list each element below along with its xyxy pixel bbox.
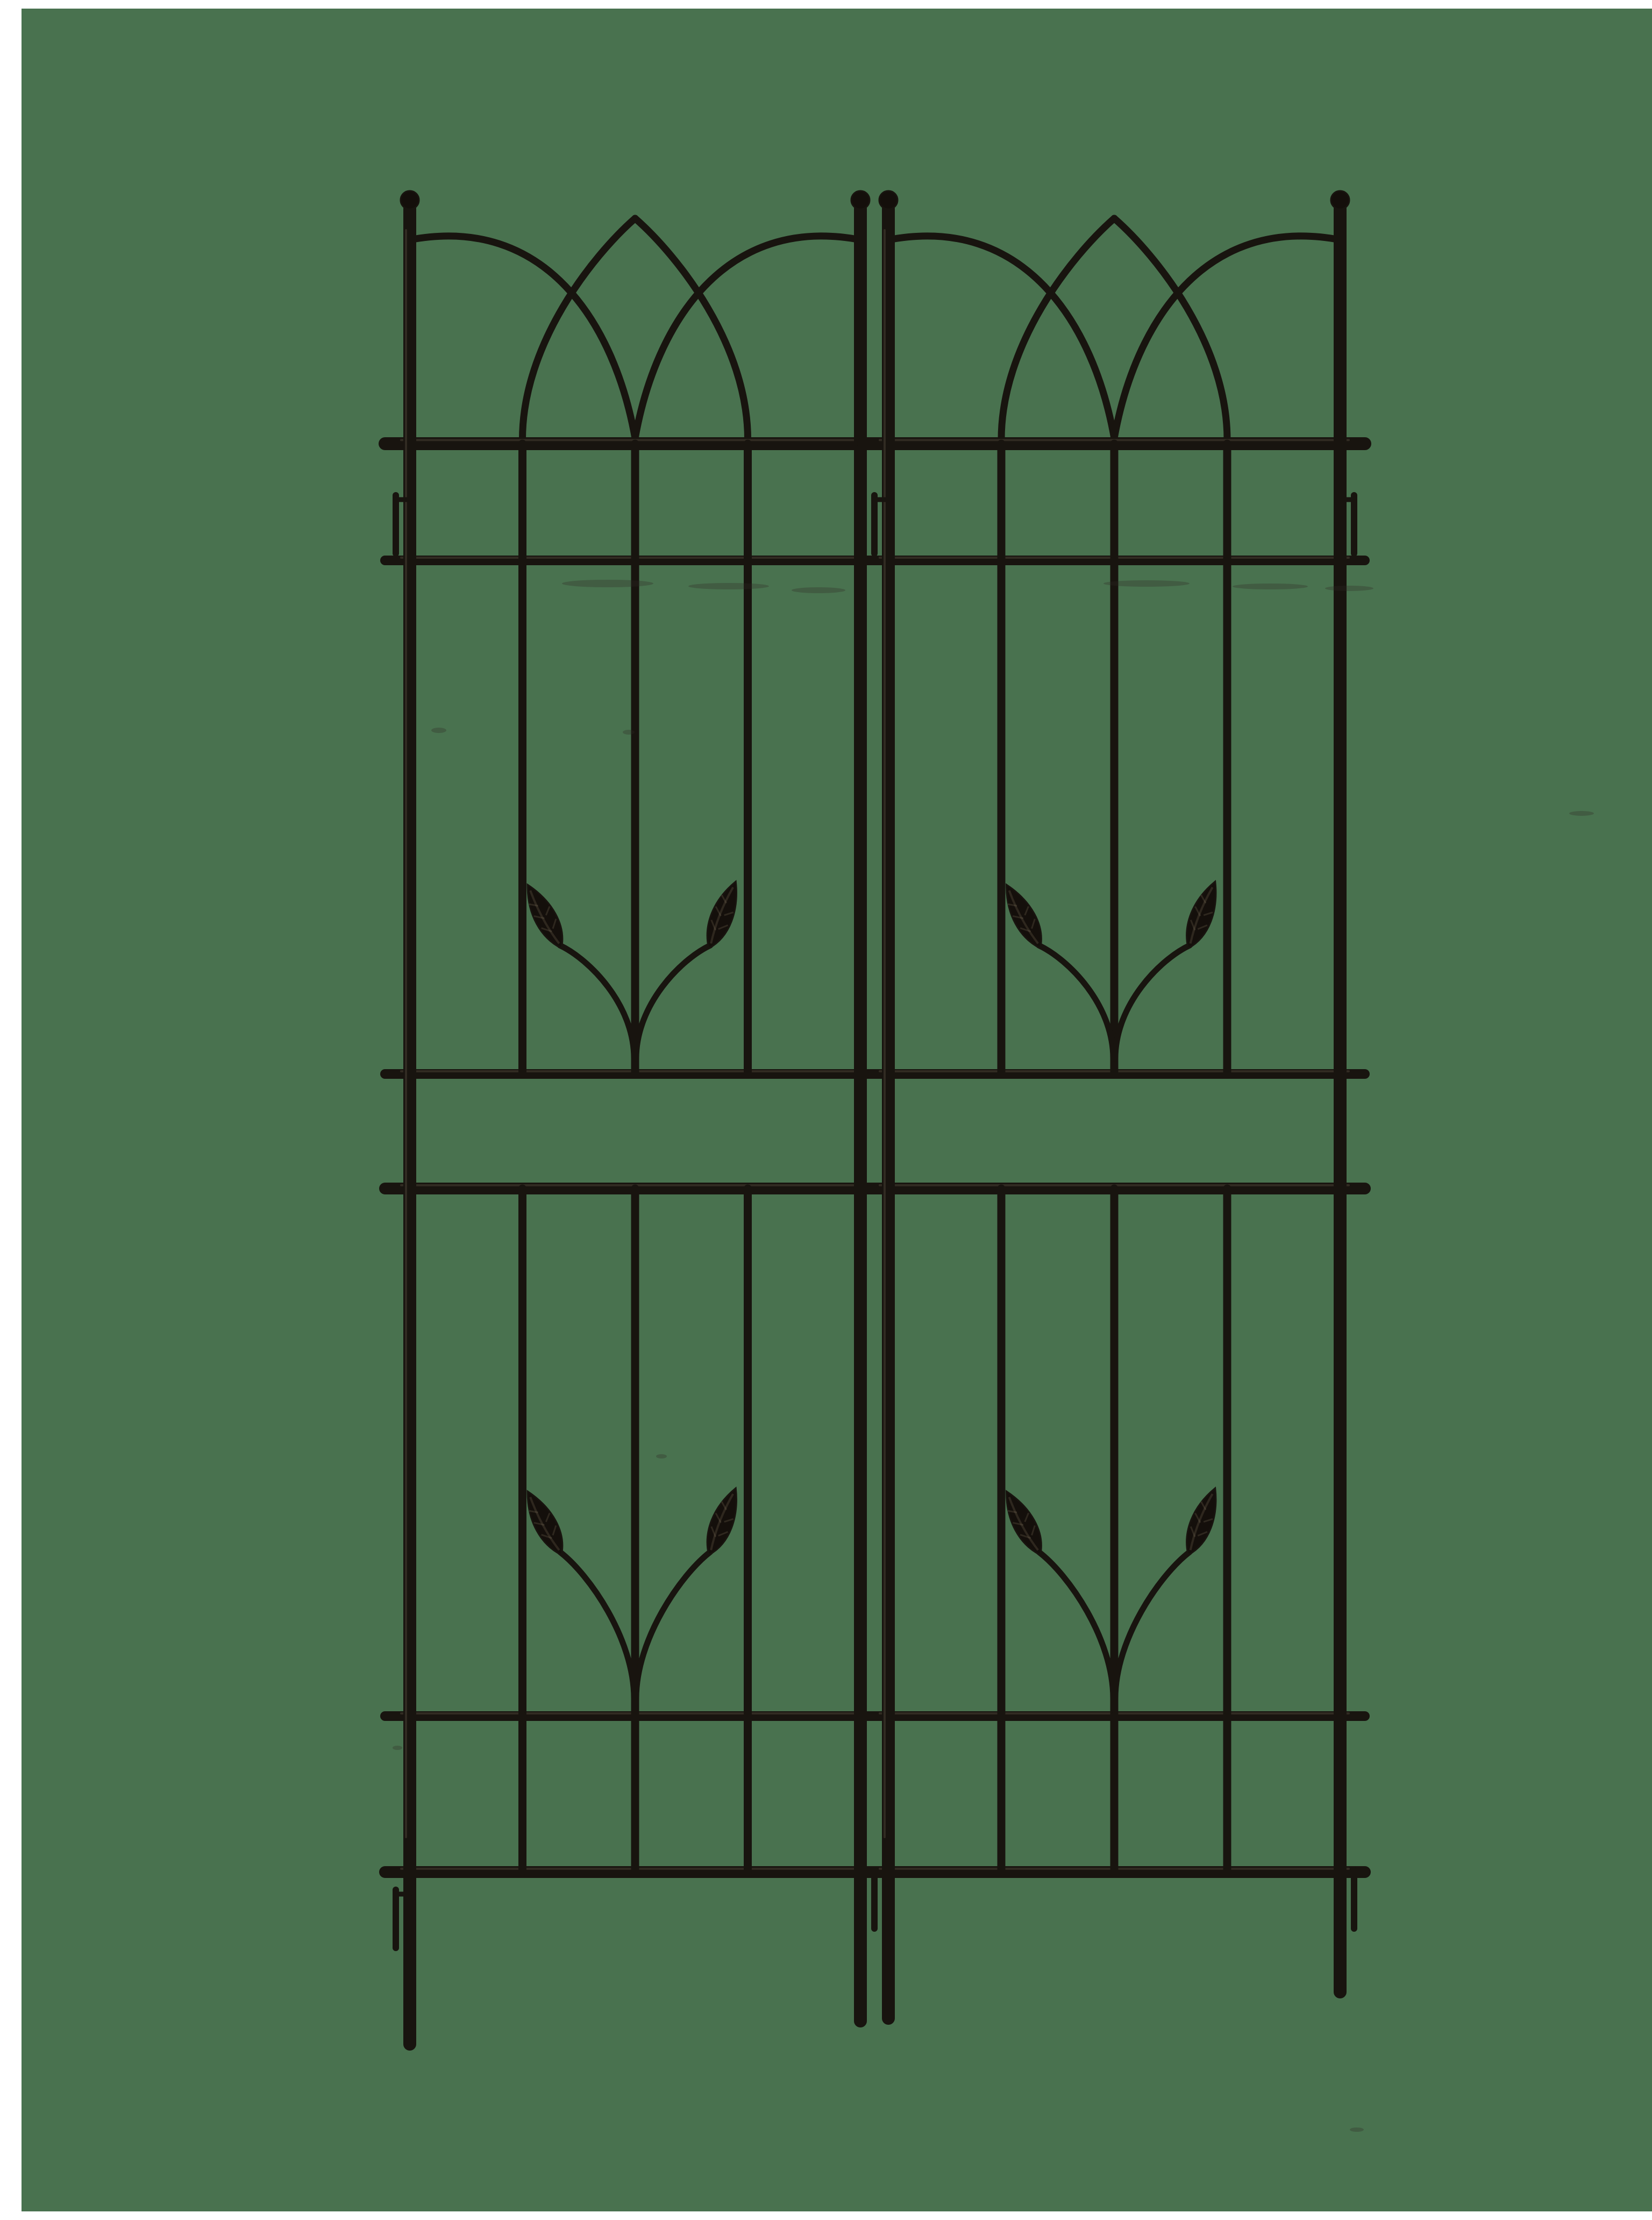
backdrop-smudge: [1103, 580, 1190, 587]
stem-lower-right: [636, 1552, 710, 1698]
arch-leg-left: [523, 218, 636, 439]
stem-upper-left: [560, 945, 635, 1058]
arch-leg-left: [1001, 218, 1114, 439]
leaf-ornament-icon: [999, 1486, 1049, 1560]
leaf-ornament-icon: [697, 1484, 747, 1559]
leaf-blade: [520, 879, 570, 954]
backdrop-smudge: [792, 587, 845, 593]
garden-trellis-product-photo: Two black metal garden trellis panels wi…: [22, 9, 1652, 2211]
stem-lower-right: [1115, 1552, 1190, 1698]
right-trellis-panel: [864, 191, 1365, 2018]
leaf-blade: [999, 1486, 1049, 1560]
backdrop-smudge: [1350, 2127, 1364, 2132]
arch-leg-right: [1114, 218, 1227, 439]
leaf-blade: [999, 879, 1049, 954]
trellis-illustration: [22, 9, 1652, 2211]
backdrop-smudge: [562, 580, 653, 587]
backdrop-smudge: [688, 583, 769, 589]
leaf-blade: [697, 1484, 747, 1559]
finial-ball: [1331, 191, 1349, 209]
backdrop-smudge: [623, 730, 635, 735]
backdrop-smudge: [393, 1746, 402, 1750]
leaf-blade: [697, 878, 747, 952]
left-trellis-panel: [385, 191, 885, 2044]
finial-ball: [851, 191, 870, 209]
leaf-ornament-icon: [520, 1486, 570, 1560]
finial-ball: [879, 191, 898, 209]
stem-upper-right: [1115, 945, 1190, 1058]
backdrop-smudge: [1233, 584, 1308, 589]
leaf-ornament-icon: [520, 879, 570, 954]
stem-upper-left: [1039, 945, 1113, 1058]
stem-lower-left: [1039, 1552, 1113, 1698]
stem-upper-right: [636, 945, 710, 1058]
leaf-blade: [1177, 1484, 1227, 1559]
vertical-bar-group: [1001, 444, 1227, 1872]
leaf-ornament-icon: [1177, 1484, 1227, 1559]
arch-leg-right: [635, 218, 748, 439]
backdrop-smudge: [1325, 586, 1373, 591]
vertical-bar-group: [523, 444, 748, 1872]
leaf-ornament-icon: [999, 879, 1049, 954]
backdrop-smudge: [1569, 811, 1594, 816]
backdrop-smudge: [431, 728, 446, 733]
leaf-blade: [1177, 878, 1227, 952]
stem-lower-left: [560, 1552, 635, 1698]
backdrop-smudge: [656, 1454, 667, 1458]
gothic-arch-group: [888, 218, 1340, 439]
backdrop-smudge-group: [393, 580, 1594, 2132]
leaf-ornament-icon: [1177, 878, 1227, 952]
gothic-arch-group: [410, 218, 860, 439]
finial-ball: [401, 191, 419, 209]
leaf-ornament-icon: [697, 878, 747, 952]
leaf-blade: [520, 1486, 570, 1560]
